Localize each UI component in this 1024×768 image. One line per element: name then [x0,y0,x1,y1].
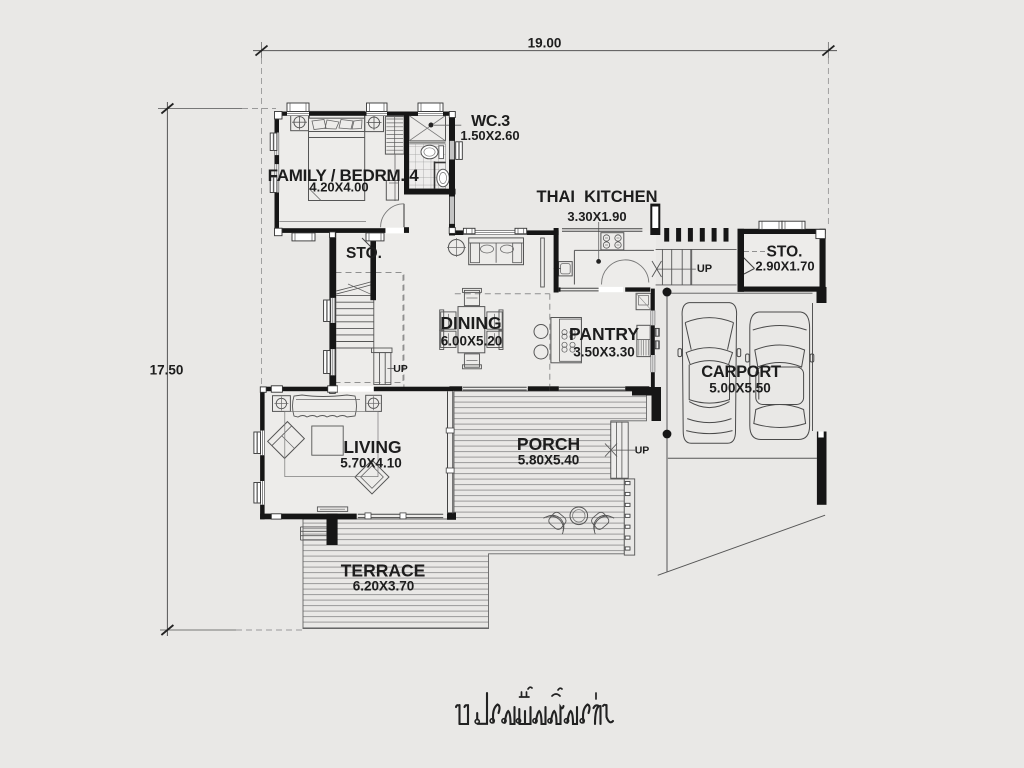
svg-text:UP: UP [697,263,712,275]
svg-text:17.50: 17.50 [150,363,184,378]
svg-text:CARPORT: CARPORT [701,363,781,381]
svg-text:STO.: STO. [346,245,382,262]
svg-text:4.20X4.00: 4.20X4.00 [309,180,368,195]
svg-text:PANTRY: PANTRY [569,324,639,344]
svg-text:19.00: 19.00 [528,36,562,51]
svg-text:DINING: DINING [440,313,501,333]
svg-text:6.20X3.70: 6.20X3.70 [353,579,415,594]
svg-text:5.00X5.50: 5.00X5.50 [709,381,771,396]
svg-text:1.50X2.60: 1.50X2.60 [460,128,519,143]
svg-text:LIVING: LIVING [343,437,401,457]
svg-text:UP: UP [393,363,408,375]
svg-text:UP: UP [635,445,650,457]
svg-text:3.30X1.90: 3.30X1.90 [567,209,626,224]
svg-text:5.80X5.40: 5.80X5.40 [518,453,580,468]
svg-text:THAI KITCHEN: THAI KITCHEN [537,188,658,206]
svg-text:TERRACE: TERRACE [341,561,426,581]
svg-text:PORCH: PORCH [517,434,580,454]
svg-text:5.70X4.10: 5.70X4.10 [340,456,402,471]
svg-text:3.50X3.30: 3.50X3.30 [573,345,635,360]
svg-text:6.00X5.20: 6.00X5.20 [441,334,503,349]
svg-text:2.90X1.70: 2.90X1.70 [755,259,814,274]
